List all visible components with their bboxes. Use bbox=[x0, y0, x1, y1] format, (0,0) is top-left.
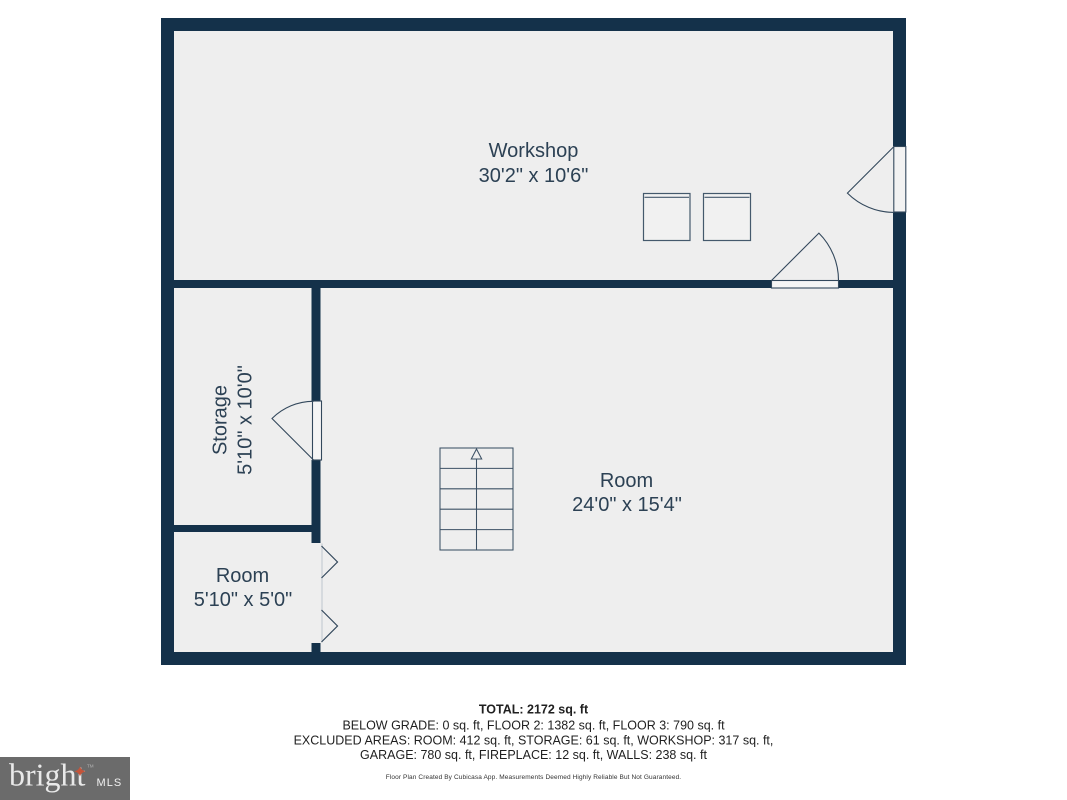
svg-text:BELOW GRADE: 0 sq. ft, FLOOR 2: BELOW GRADE: 0 sq. ft, FLOOR 2: 1382 sq.… bbox=[342, 719, 725, 733]
svg-text:Room: Room bbox=[600, 470, 653, 492]
svg-text:Workshop: Workshop bbox=[489, 140, 579, 162]
svg-text:GARAGE: 780 sq. ft, FIREPLACE:: GARAGE: 780 sq. ft, FIREPLACE: 12 sq. ft… bbox=[360, 748, 707, 762]
svg-text:Storage: Storage bbox=[210, 385, 232, 455]
svg-text:bright: bright bbox=[9, 757, 86, 793]
svg-text:24'0" x 15'4": 24'0" x 15'4" bbox=[572, 494, 682, 516]
svg-text:Floor Plan Created By Cubicasa: Floor Plan Created By Cubicasa App. Meas… bbox=[386, 774, 682, 781]
svg-text:5'10" x 10'0": 5'10" x 10'0" bbox=[235, 365, 257, 475]
svg-text:MLS: MLS bbox=[97, 777, 123, 789]
svg-text:TOTAL: 2172 sq. ft: TOTAL: 2172 sq. ft bbox=[479, 703, 589, 717]
svg-text:TM: TM bbox=[87, 764, 94, 769]
svg-text:Room: Room bbox=[216, 565, 269, 587]
svg-text:5'10" x 5'0": 5'10" x 5'0" bbox=[194, 589, 293, 611]
svg-text:EXCLUDED AREAS: ROOM: 412 sq.: EXCLUDED AREAS: ROOM: 412 sq. ft, STORAG… bbox=[294, 733, 774, 747]
svg-text:30'2" x 10'6": 30'2" x 10'6" bbox=[479, 165, 589, 187]
